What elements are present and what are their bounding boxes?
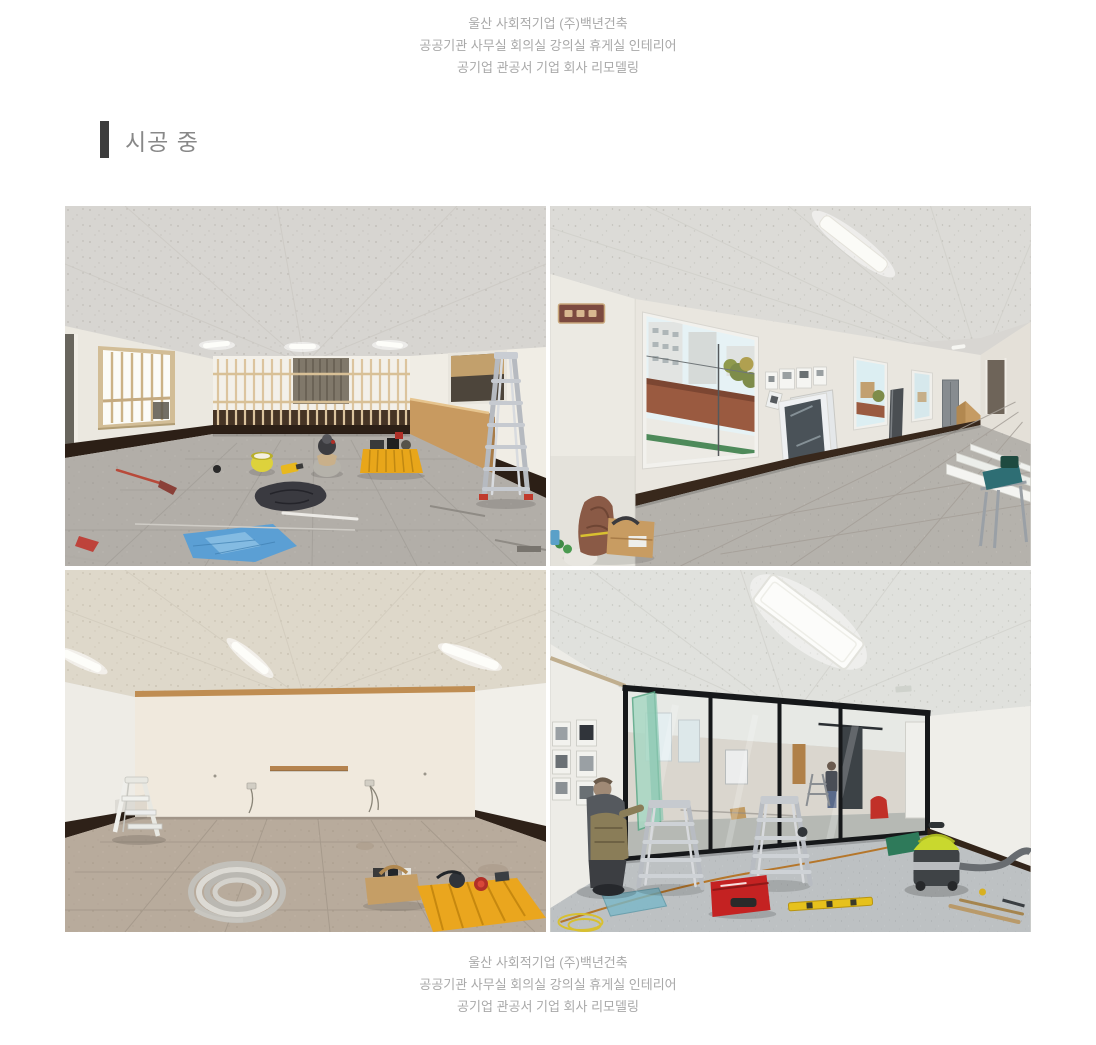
caption-line-2: 공공기관 사무실 회의실 강의실 휴게실 인테리어 <box>0 35 1096 57</box>
caption-line-2: 공공기관 사무실 회의실 강의실 휴게실 인테리어 <box>0 974 1096 996</box>
photo-construction-empty-room <box>65 570 546 932</box>
photo-gallery <box>65 206 1031 932</box>
photo-construction-framing-room <box>65 206 546 566</box>
photo-construction-glass-partition <box>550 570 1031 932</box>
photo-4-scene <box>550 570 1031 932</box>
photo-2-scene <box>550 206 1031 566</box>
caption-line-3: 공기업 관공서 기업 회사 리모델링 <box>0 996 1096 1018</box>
red-tool-case <box>709 875 777 919</box>
post-header-caption: 울산 사회적기업 (주)백년건축 공공기관 사무실 회의실 강의실 휴게실 인테… <box>0 0 1096 79</box>
heading-accent-bar <box>100 121 109 158</box>
photo-3-scene <box>65 570 546 932</box>
post-footer-caption: 울산 사회적기업 (주)백년건축 공공기관 사무실 회의실 강의실 휴게실 인테… <box>0 952 1096 1018</box>
caption-line-1: 울산 사회적기업 (주)백년건축 <box>0 952 1096 974</box>
wall-sign <box>559 304 605 323</box>
photo-1-scene <box>65 206 546 566</box>
blog-post-page: 울산 사회적기업 (주)백년건축 공공기관 사무실 회의실 강의실 휴게실 인테… <box>0 0 1096 1018</box>
photo-construction-window-room <box>550 206 1031 566</box>
section-heading: 시공 중 <box>100 121 1096 158</box>
heading-text: 시공 중 <box>125 123 199 157</box>
caption-line-1: 울산 사회적기업 (주)백년건축 <box>0 13 1096 35</box>
caption-line-3: 공기업 관공서 기업 회사 리모델링 <box>0 57 1096 79</box>
